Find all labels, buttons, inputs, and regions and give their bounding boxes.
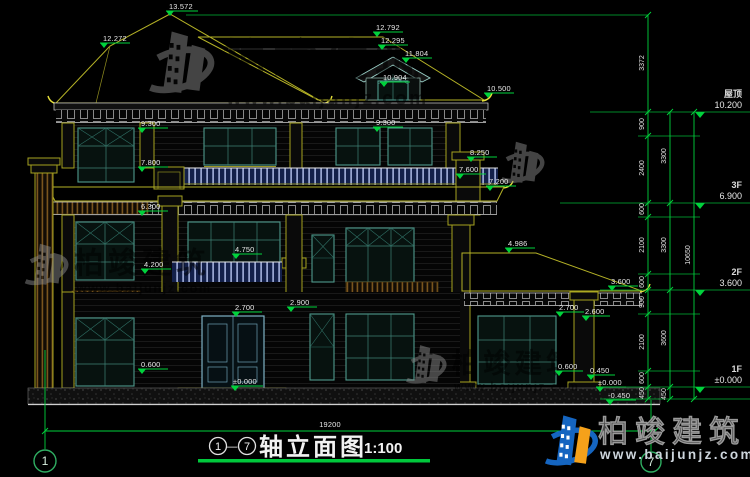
elev-mark: 12.272 [103, 34, 127, 43]
1f-window-left [76, 318, 134, 386]
elev-mark: 0.600 [141, 360, 161, 369]
1f-window-narrow [310, 314, 334, 380]
elev-mark: 13.572 [169, 2, 193, 11]
3f-window-right2 [388, 128, 432, 165]
svg-text:2F: 2F [731, 267, 742, 277]
3f-balcony-railing [174, 168, 498, 185]
dim-inner-7: 2100 [639, 334, 646, 350]
elev-mark: 0.450 [590, 366, 610, 375]
level-1f: 1F ±0.000 [695, 364, 742, 393]
elev-mark: 6.300 [141, 202, 161, 211]
dim-outer-2: 3600 [661, 330, 668, 346]
axis-bubble-1: 1 [34, 450, 56, 472]
dim-inner-1: 900 [639, 118, 646, 130]
title-scale: 1:100 [364, 440, 402, 457]
dim-total: 10650 [685, 245, 692, 265]
3f-window-left [78, 128, 134, 182]
elev-mark: 10.500 [487, 84, 511, 93]
title-axis-end: 7 [244, 441, 250, 453]
svg-text:6.900: 6.900 [719, 191, 742, 201]
level-3f: 3F 6.900 [695, 180, 742, 209]
dim-outer-0: 3300 [661, 148, 668, 164]
level-2f: 2F 3.600 [695, 267, 742, 296]
title-underline [198, 459, 430, 463]
elev-mark: 8.250 [470, 148, 490, 157]
dim-inner-9: 450 [639, 387, 646, 399]
svg-text:1F: 1F [731, 364, 742, 374]
elev-mark: 11.804 [405, 49, 428, 58]
balcony-roof [48, 187, 504, 201]
elev-mark: 12.792 [376, 23, 400, 32]
elev-mark: 0.600 [558, 362, 578, 371]
cad-elevation-drawing: 柏竣建筑 www.baijunjz.com [0, 0, 750, 477]
elev-mark: 2.700 [235, 303, 255, 312]
svg-text:10.200: 10.200 [714, 100, 742, 110]
svg-text:3F: 3F [731, 180, 742, 190]
3f-window-center [204, 128, 276, 167]
dim-inner-4: 2100 [639, 237, 646, 253]
svg-text:屋顶: 屋顶 [724, 89, 742, 99]
elev-mark: 12.295 [381, 36, 405, 45]
brand-logo-color: 柏竣建筑 www.baijunjz.com [535, 415, 750, 469]
elev-mark: 4.200 [144, 260, 164, 269]
title-axis-start: 1 [215, 441, 221, 453]
elev-mark: 9.300 [141, 119, 161, 128]
dim-inner-3: 600 [639, 203, 646, 215]
2f-window-narrow [312, 235, 334, 282]
dim-inner-2: 2400 [639, 160, 646, 176]
title-dash: — [227, 441, 238, 453]
elev-mark: ±0.000 [233, 377, 257, 386]
title-text: 轴立面图 [259, 433, 367, 461]
svg-text:3.600: 3.600 [719, 278, 742, 288]
elev-mark: 7.200 [489, 177, 509, 186]
elev-mark: 7.800 [141, 158, 161, 167]
brand-url: www.baijunjz.com [599, 447, 750, 462]
elev-mark: 9.300 [376, 118, 396, 127]
level-roof: 屋顶 10.200 [695, 89, 742, 118]
elev-mark: 2.900 [290, 298, 310, 307]
elev-mark: 2.700 [559, 303, 579, 312]
1f-window-right [346, 314, 414, 380]
elev-mark: 4.986 [508, 239, 528, 248]
watermark-right [493, 142, 688, 194]
drawing-title: 1 — 7 轴立面图 1:100 [198, 433, 430, 463]
elev-mark: ±0.000 [598, 378, 622, 387]
dim-inner-8: 600 [639, 372, 646, 384]
svg-text:±0.000: ±0.000 [715, 375, 742, 385]
dim-inner-6: 900 [639, 296, 646, 308]
dim-outer-3: 450 [661, 388, 668, 400]
elevation-canvas: 柏竣建筑 www.baijunjz.com [0, 0, 750, 477]
dim-outer-1: 3300 [661, 237, 668, 253]
elev-mark: 2.600 [585, 307, 605, 316]
3f-window-right1 [336, 128, 380, 165]
elev-mark: 7.600 [459, 165, 479, 174]
brand-name: 柏竣建筑 [598, 415, 746, 449]
dim-inner-0: 3372 [639, 55, 646, 71]
elev-mark: 3.600 [611, 277, 631, 286]
elev-mark: 4.750 [235, 245, 255, 254]
overall-width-dim: 19200 [319, 420, 341, 429]
elev-mark: 10.904 [383, 73, 407, 82]
svg-text:1: 1 [42, 454, 49, 468]
dim-inner-5: 600 [639, 276, 646, 288]
